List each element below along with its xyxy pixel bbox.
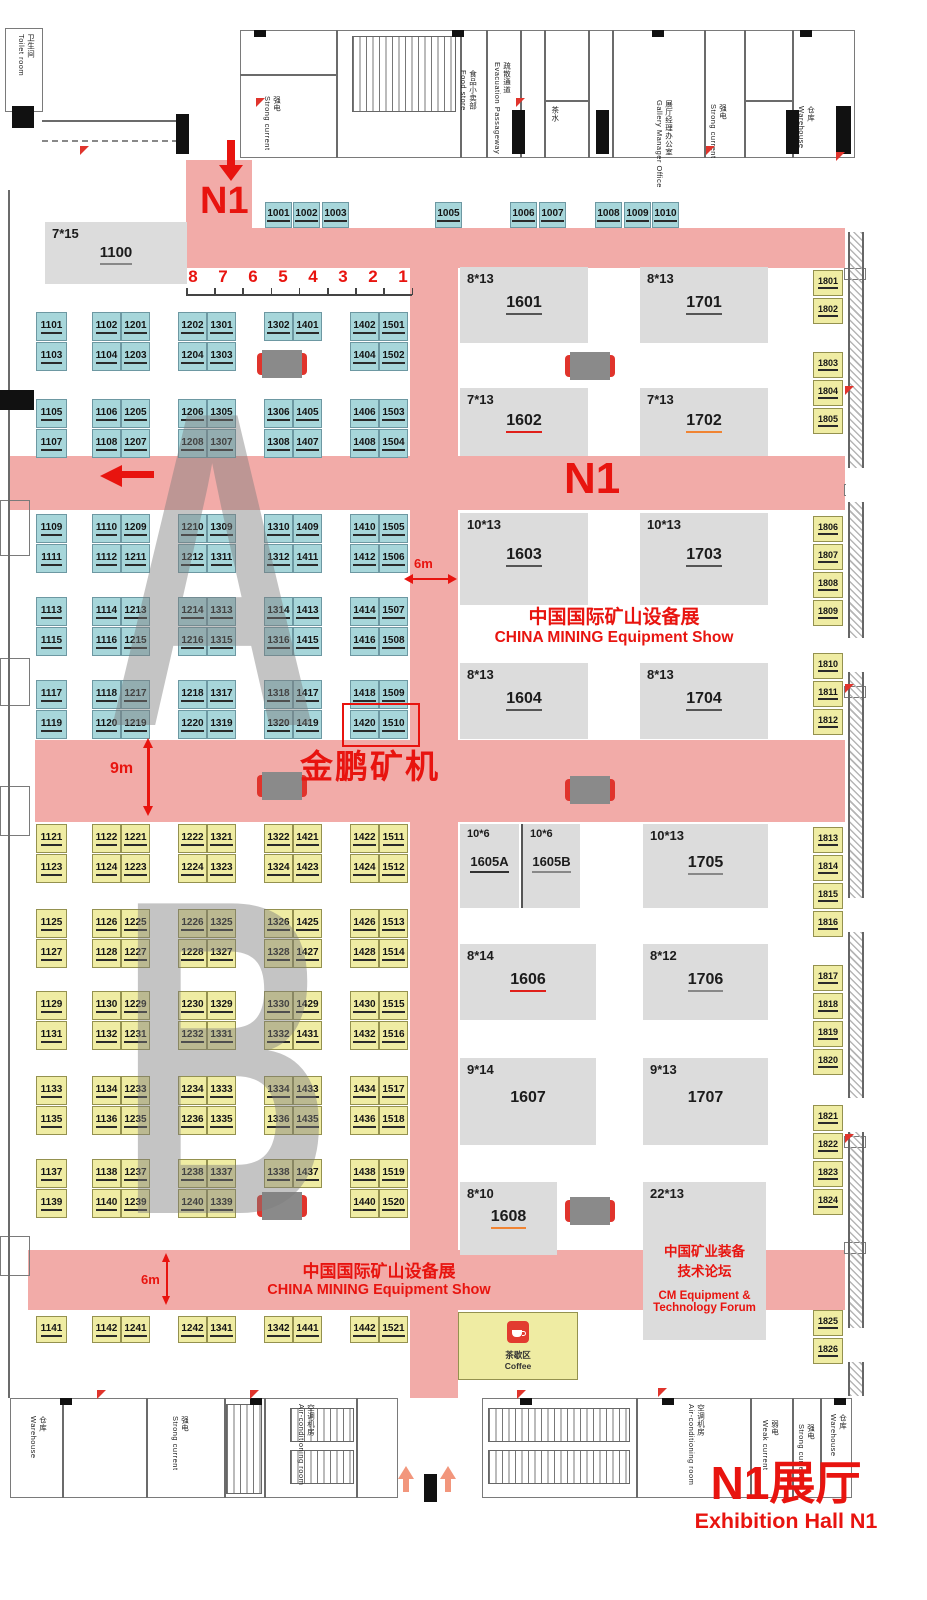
booth-number: 1801	[818, 277, 838, 290]
booth-number: 1428	[353, 947, 375, 961]
booth-1505: 1505	[379, 514, 408, 543]
booth-1118: 1118	[92, 680, 121, 709]
booth-number: 1103	[41, 350, 63, 364]
booth-number: 1435	[296, 1114, 318, 1128]
booth-1208: 1208	[178, 429, 207, 458]
show-title-bottom-en: CHINA MINING Equipment Show	[248, 1282, 510, 1298]
booth-number: 1235	[124, 1114, 146, 1128]
booth-number: 1431	[296, 1029, 318, 1043]
booth-1217: 1217	[121, 680, 150, 709]
booth-number: 1109	[41, 522, 63, 536]
pillar	[262, 1192, 302, 1220]
booth-number: 1225	[124, 917, 146, 931]
hall-title-cn: N1展厅	[652, 1458, 920, 1509]
booth-1234: 1234	[178, 1076, 207, 1105]
booth-1307: 1307	[207, 429, 236, 458]
booth-number: 1229	[124, 999, 146, 1013]
booth-number: 1240	[181, 1197, 203, 1211]
booth-1224: 1224	[178, 854, 207, 883]
booth-1337: 1337	[207, 1159, 236, 1188]
structural-column	[60, 1398, 72, 1405]
booth-number: 1810	[818, 660, 838, 673]
booth-number: 1416	[353, 635, 375, 649]
booth-1407: 1407	[293, 429, 322, 458]
booth-number: 1817	[818, 972, 838, 985]
booth-number: 1105	[41, 407, 63, 421]
booth-1824: 1824	[813, 1189, 843, 1215]
show-title-bottom: 中国国际矿山设备展 CHINA MINING Equipment Show	[248, 1257, 510, 1298]
booth-1322: 1322	[264, 824, 293, 853]
booth-number: 1409	[296, 522, 318, 536]
booth-number: 1211	[125, 552, 147, 566]
booth-number: 1202	[181, 320, 203, 334]
booth-number: 1421	[296, 832, 318, 846]
dim-6m-right-label: 6m	[414, 556, 433, 571]
booth-size: 22*13	[650, 1186, 684, 1201]
wall	[42, 120, 178, 122]
booth-1328: 1328	[264, 939, 293, 968]
booth-number: 1117	[41, 688, 62, 702]
booth-1312: 1312	[264, 544, 293, 573]
entrance-door	[424, 1474, 437, 1502]
structural-column	[452, 30, 464, 37]
booth-number: 1415	[296, 635, 318, 649]
booth-number: 1309	[210, 522, 232, 536]
booth-1335: 1335	[207, 1106, 236, 1135]
booth-1818: 1818	[813, 993, 843, 1019]
booth-number: 1509	[382, 688, 404, 702]
booth-1805: 1805	[813, 408, 843, 434]
booth-number: 1216	[181, 635, 203, 649]
pillar	[570, 352, 610, 380]
show-title-mid: 中国国际矿山设备展 CHINA MINING Equipment Show	[482, 602, 746, 647]
booth-number: 1815	[818, 890, 838, 903]
booth-1105: 1105	[36, 399, 67, 428]
booth-1241: 1241	[121, 1316, 150, 1343]
booth-1136: 1136	[92, 1106, 121, 1135]
booth-number: 1512	[382, 862, 404, 876]
booth-1010: 1010	[652, 202, 679, 228]
booth-number: 1104	[96, 350, 118, 364]
booth-number: 1207	[124, 437, 146, 451]
booth-1325: 1325	[207, 909, 236, 938]
booth-number: 1423	[296, 862, 318, 876]
booth-1318: 1318	[264, 680, 293, 709]
dim-6m-bottom-label: 6m	[141, 1272, 160, 1287]
booth-number: 1009	[626, 208, 648, 222]
booth-1518: 1518	[379, 1106, 408, 1135]
booth-1133: 1133	[36, 1076, 67, 1105]
booth-1330: 1330	[264, 991, 293, 1020]
booth-number: 1232	[181, 1029, 203, 1043]
booth-number: 1101	[41, 320, 63, 334]
booth-number: 1703	[640, 546, 768, 564]
booth-number: 1338	[267, 1167, 289, 1181]
booth-number: 1342	[267, 1323, 289, 1337]
booth-number: 1210	[181, 522, 203, 536]
room-outline	[240, 30, 855, 158]
wall	[240, 74, 336, 76]
booth-number: 1805	[818, 415, 838, 428]
booth-1430: 1430	[350, 991, 379, 1020]
wall	[146, 1398, 148, 1498]
booth-1104: 1104	[92, 342, 121, 371]
booth-number: 1605A	[460, 854, 519, 869]
booth-number: 1218	[181, 688, 203, 702]
booth-size: 10*6	[530, 828, 553, 840]
booth-number: 1328	[267, 947, 289, 961]
booth-1406: 1406	[350, 399, 379, 428]
booth-number: 1707	[643, 1089, 768, 1107]
booth-1433: 1433	[293, 1076, 322, 1105]
booth-size: 7*15	[52, 226, 79, 241]
booth-number: 1822	[818, 1140, 838, 1153]
booth-number: 1131	[41, 1029, 63, 1043]
booth-1405: 1405	[293, 399, 322, 428]
booth-number: 1408	[353, 437, 375, 451]
booth-1424: 1424	[350, 854, 379, 883]
booth-number: 1410	[353, 522, 375, 536]
ruler-tick	[299, 288, 301, 295]
booth-1129: 1129	[36, 991, 67, 1020]
booth-number: 1003	[324, 208, 346, 222]
wall	[356, 1398, 358, 1498]
booth-1416: 1416	[350, 627, 379, 656]
fire-corner-marker	[845, 1134, 854, 1143]
booth-number: 1118	[96, 688, 117, 702]
booth-number: 1140	[96, 1197, 118, 1211]
booth-size: 9*14	[467, 1062, 494, 1077]
booth-number: 1702	[640, 412, 768, 430]
n1-entrance-label: N1	[200, 180, 249, 223]
room-outline	[0, 786, 30, 836]
booth-number: 1705	[643, 854, 768, 872]
wall	[62, 1398, 64, 1498]
booth-1205: 1205	[121, 399, 150, 428]
wall	[336, 30, 338, 158]
booth-number: 1002	[295, 208, 317, 222]
booth-number: 1133	[41, 1084, 63, 1098]
booth-number: 1137	[41, 1167, 63, 1181]
booth-1810: 1810	[813, 653, 843, 679]
aisle-n1-horizontal	[8, 456, 845, 510]
fire-corner-marker	[250, 1390, 259, 1399]
booth-number: 1114	[96, 605, 117, 619]
booth-number: 1236	[181, 1114, 203, 1128]
booth-1222: 1222	[178, 824, 207, 853]
exhibitor-highlight-label: 金鹏矿机	[300, 740, 440, 788]
booth-number: 1407	[296, 437, 318, 451]
booth-1227: 1227	[121, 939, 150, 968]
booth-number: 1314	[267, 605, 289, 619]
booth-number: 1113	[41, 605, 62, 619]
booth-number: 1513	[382, 917, 404, 931]
booth-1209: 1209	[121, 514, 150, 543]
booth-number: 1602	[460, 412, 588, 430]
booth-number: 1516	[382, 1029, 404, 1043]
booth-size: 7*13	[467, 392, 494, 407]
booth-1122: 1122	[92, 824, 121, 853]
booth-number: 1809	[818, 607, 838, 620]
room-label: 疏散通道 Evacuation Passageway	[492, 62, 512, 154]
booth-1441: 1441	[293, 1316, 322, 1343]
wall	[264, 1398, 266, 1498]
booth-number: 1317	[210, 688, 232, 702]
booth-number: 1010	[654, 208, 676, 222]
booth-1601: 8*131601	[460, 267, 588, 343]
booth-number: 1813	[818, 834, 838, 847]
booth-number: 1323	[210, 862, 232, 876]
room-label: 仓库 Warehouse	[796, 106, 816, 149]
booth-number: 1242	[181, 1323, 203, 1337]
booth-number: 1116	[96, 635, 117, 649]
booth-number: 1136	[96, 1114, 118, 1128]
ruler-tick	[242, 288, 244, 295]
booth-number: 1804	[818, 387, 838, 400]
booth-1821: 1821	[813, 1105, 843, 1131]
booth-number: 1825	[818, 1317, 838, 1330]
booth-1140: 1140	[92, 1189, 121, 1218]
booth-number: 1701	[640, 294, 768, 312]
booth-number: 1814	[818, 862, 838, 875]
fire-corner-marker	[97, 1390, 106, 1399]
booth-size: 10*13	[647, 517, 681, 532]
booth-number: 1607	[460, 1089, 596, 1107]
booth-1812: 1812	[813, 709, 843, 735]
forum-text: 中国矿业装备 技术论坛 CM Equipment & Technology Fo…	[643, 1240, 766, 1314]
booth-1515: 1515	[379, 991, 408, 1020]
booth-size: 8*10	[467, 1186, 494, 1201]
booth-number: 1205	[124, 407, 146, 421]
booth-1314: 1314	[264, 597, 293, 626]
booth-1121: 1121	[36, 824, 67, 853]
booth-1341: 1341	[207, 1316, 236, 1343]
highlighted-booth-outline	[342, 703, 420, 747]
structural-column	[254, 30, 266, 37]
booth-number: 1330	[267, 999, 289, 1013]
booth-1202: 1202	[178, 312, 207, 341]
booth-number: 1231	[124, 1029, 146, 1043]
booth-number: 1412	[353, 552, 375, 566]
booth-1210: 1210	[178, 514, 207, 543]
fire-corner-marker	[836, 152, 845, 161]
booth-1426: 1426	[350, 909, 379, 938]
booth-number: 1119	[41, 718, 62, 732]
booth-1109: 1109	[36, 514, 67, 543]
booth-1002: 1002	[293, 202, 320, 228]
wall	[544, 30, 546, 158]
booth-number: 1320	[267, 718, 289, 732]
pillar	[570, 1197, 610, 1225]
pillar	[262, 350, 302, 378]
aisle-arrow-left-stem	[122, 471, 154, 478]
booth-number: 1334	[267, 1084, 289, 1098]
forum-en-1: CM Equipment &	[643, 1290, 766, 1302]
structural-column	[596, 110, 609, 154]
ruler-tick	[327, 288, 329, 295]
aisle-arrow-left-head	[100, 465, 122, 487]
booth-number: 1503	[382, 407, 404, 421]
booth-number: 1816	[818, 918, 838, 931]
booth-number: 1122	[96, 832, 118, 846]
booth-1125: 1125	[36, 909, 67, 938]
booth-number: 1302	[267, 320, 289, 334]
structural-column	[176, 114, 189, 154]
booth-1339: 1339	[207, 1189, 236, 1218]
booth-1706: 8*121706	[643, 944, 768, 1020]
booth-1813: 1813	[813, 827, 843, 853]
booth-1604: 8*131604	[460, 663, 588, 739]
booth-1503: 1503	[379, 399, 408, 428]
aisle-top-horizontal	[186, 228, 845, 268]
booth-1428: 1428	[350, 939, 379, 968]
ruler-tick	[355, 288, 357, 295]
booth-1231: 1231	[121, 1021, 150, 1050]
booth-1235: 1235	[121, 1106, 150, 1135]
booth-number: 1337	[210, 1167, 232, 1181]
booth-size: 8*13	[467, 667, 494, 682]
booth-1816: 1816	[813, 911, 843, 937]
booth-size: 10*13	[650, 828, 684, 843]
booth-number: 1440	[353, 1197, 375, 1211]
booth-1435: 1435	[293, 1106, 322, 1135]
toilet-stalls	[488, 1450, 630, 1484]
booth-number: 1425	[296, 917, 318, 931]
wall	[486, 30, 488, 158]
booth-1305: 1305	[207, 399, 236, 428]
booth-number: 1319	[210, 718, 232, 732]
booth-1411: 1411	[293, 544, 322, 573]
booth-number: 1233	[124, 1084, 146, 1098]
fire-corner-marker	[658, 1388, 667, 1397]
booth-number: 1333	[210, 1084, 232, 1098]
booth-1811: 1811	[813, 681, 843, 707]
booth-number: 1132	[96, 1029, 118, 1043]
booth-size: 7*13	[647, 392, 674, 407]
wall	[744, 100, 792, 102]
booth-number: 1316	[267, 635, 289, 649]
fire-corner-marker	[516, 98, 525, 107]
booth-number: 1217	[124, 688, 146, 702]
booth-number: 1311	[211, 552, 233, 566]
booth-1319: 1319	[207, 710, 236, 739]
booth-number: 1108	[96, 437, 118, 451]
booth-1223: 1223	[121, 854, 150, 883]
booth-1214: 1214	[178, 597, 207, 626]
booth-1326: 1326	[264, 909, 293, 938]
booth-number: 1001	[267, 208, 289, 222]
ruler-number: 1	[394, 267, 412, 287]
structural-column	[652, 30, 664, 37]
room-outline	[0, 500, 30, 556]
booth-number: 1301	[210, 320, 232, 334]
booth-1408: 1408	[350, 429, 379, 458]
booth-1819: 1819	[813, 1021, 843, 1047]
booth-1419: 1419	[293, 710, 322, 739]
booth-1003: 1003	[322, 202, 349, 228]
booth-number: 1203	[124, 350, 146, 364]
booth-number: 1115	[41, 635, 62, 649]
entrance-up-arrow-stem	[445, 1479, 451, 1492]
coffee-label-cn: 茶歇区	[459, 1349, 577, 1361]
booth-number: 1213	[124, 605, 146, 619]
forum-en-2: Technology Forum	[643, 1302, 766, 1314]
booth-1410: 1410	[350, 514, 379, 543]
booth-1311: 1311	[207, 544, 236, 573]
booth-number: 1401	[296, 320, 318, 334]
booth-number: 1418	[353, 688, 375, 702]
booth-size: 9*13	[650, 1062, 677, 1077]
dim-9m-line	[147, 746, 150, 808]
booth-number: 1221	[124, 832, 146, 846]
booth-1804: 1804	[813, 380, 843, 406]
booth-1809: 1809	[813, 600, 843, 626]
booth-number: 1605B	[523, 854, 580, 869]
wall-door-gap	[846, 898, 868, 932]
booth-1404: 1404	[350, 342, 379, 371]
booth-number: 1520	[382, 1197, 404, 1211]
booth-1108: 1108	[92, 429, 121, 458]
booth-1704: 8*131704	[640, 663, 768, 739]
booth-1123: 1123	[36, 854, 67, 883]
booth-number: 1223	[124, 862, 146, 876]
booth-number: 1426	[353, 917, 375, 931]
booth-1321: 1321	[207, 824, 236, 853]
ruler-tick	[186, 288, 188, 295]
booth-number: 1432	[353, 1029, 375, 1043]
booth-1301: 1301	[207, 312, 236, 341]
booth-1239: 1239	[121, 1189, 150, 1218]
booth-1117: 1117	[36, 680, 67, 709]
booth-1313: 1313	[207, 597, 236, 626]
booth-1413: 1413	[293, 597, 322, 626]
booth-1822: 1822	[813, 1133, 843, 1159]
booth-number: 1120	[96, 718, 118, 732]
booth-1221: 1221	[121, 824, 150, 853]
booth-number: 1237	[124, 1167, 146, 1181]
wall	[744, 30, 746, 158]
booth-number: 1413	[296, 605, 318, 619]
booth-1331: 1331	[207, 1021, 236, 1050]
booth-number: 1419	[296, 718, 318, 732]
booth-number: 1411	[297, 552, 319, 566]
booth-number: 1608	[460, 1208, 557, 1226]
booth-number: 1519	[382, 1167, 404, 1181]
booth-number: 1139	[41, 1197, 63, 1211]
fire-corner-marker	[256, 98, 265, 107]
booth-1701: 8*131701	[640, 267, 768, 343]
booth-1229: 1229	[121, 991, 150, 1020]
fire-corner-marker	[845, 684, 854, 693]
booth-number: 1606	[460, 971, 596, 989]
booth-1134: 1134	[92, 1076, 121, 1105]
booth-number: 1222	[181, 832, 203, 846]
booth-1220: 1220	[178, 710, 207, 739]
booth-size: 8*12	[650, 948, 677, 963]
forum-cn-2: 技术论坛	[643, 1260, 766, 1280]
room-label: 食品小卖部 Food store	[458, 70, 478, 111]
booth-1119: 1119	[36, 710, 67, 739]
booth-1507: 1507	[379, 597, 408, 626]
booth-1233: 1233	[121, 1076, 150, 1105]
corridor-dashed-line	[42, 140, 178, 142]
room-outline	[0, 658, 30, 706]
booth-1139: 1139	[36, 1189, 67, 1218]
booth-number: 1125	[41, 917, 63, 931]
ruler-number: 3	[334, 267, 352, 287]
booth-number: 1806	[818, 523, 838, 536]
booth-number: 1427	[296, 947, 318, 961]
